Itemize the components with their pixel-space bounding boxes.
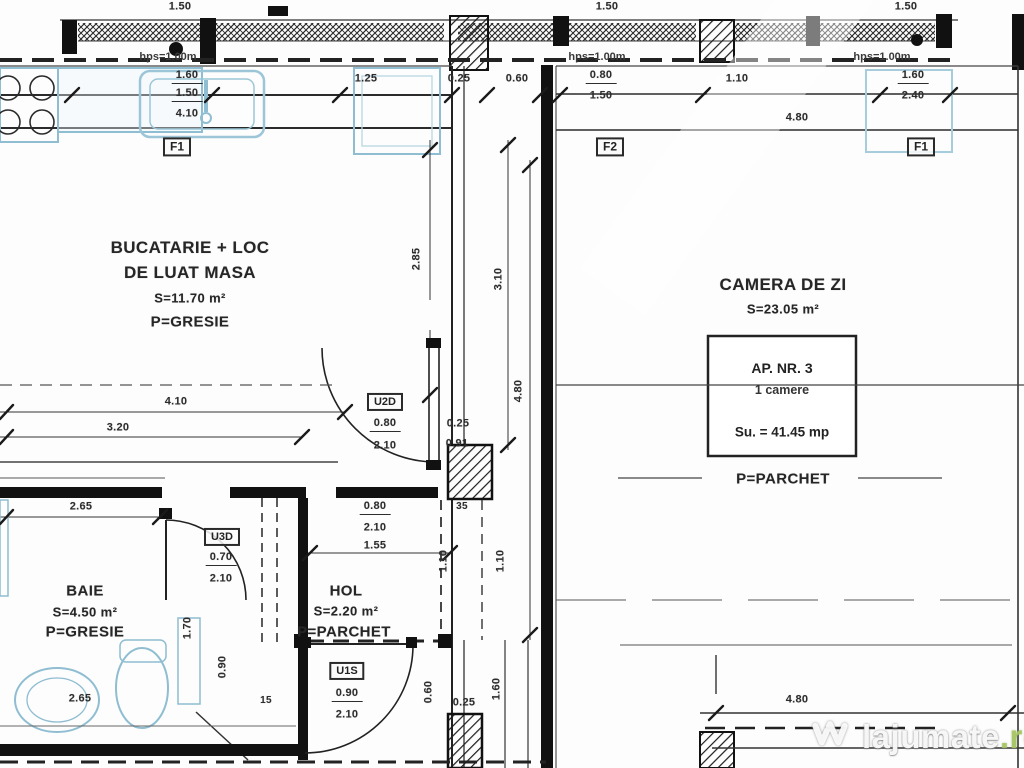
- dim-label: 1.10: [496, 550, 507, 573]
- dim-label: 4.80: [786, 113, 809, 124]
- dim-label: 0.60: [506, 74, 529, 85]
- dim-label: 4.80: [786, 695, 809, 706]
- dim-label: 0.91: [446, 439, 469, 450]
- dim-label: 1.50: [596, 2, 619, 13]
- dim-label: 4.10: [165, 397, 188, 408]
- room-finish-living: P=PARCHET: [736, 471, 830, 488]
- window-code-f2-living: F2: [596, 137, 624, 156]
- dim-label: 3.20: [107, 423, 130, 434]
- door-width-u2d: 0.80: [370, 418, 401, 432]
- watermark-logo-icon: [806, 714, 854, 758]
- dim-label: 35: [456, 502, 468, 512]
- watermark-brand: lajumate: [862, 718, 1000, 755]
- parapet-height-note: hps=1.00m: [568, 51, 625, 63]
- room-area-bath: S=4.50 m²: [53, 605, 118, 620]
- dim-label: 1.60: [898, 70, 929, 84]
- room-label-bath: BAIE: [66, 583, 103, 600]
- dim-label: 1.60: [172, 70, 203, 84]
- dim-label: 0.80: [360, 501, 391, 515]
- dim-label: 1.50: [169, 2, 192, 13]
- dim-label: 1.10: [439, 550, 450, 573]
- window-code-f1-kitchen: F1: [163, 137, 191, 156]
- door-code-u2d: U2D: [367, 393, 403, 411]
- apartment-number: AP. NR. 3: [751, 360, 812, 376]
- dim-label: 1.10: [726, 74, 749, 85]
- room-finish-kitchen: P=GRESIE: [151, 314, 230, 331]
- apartment-usable-area: Su. = 41.45 mp: [735, 425, 829, 440]
- dim-label: 0.90: [218, 656, 229, 679]
- dim-label: 2.85: [412, 248, 423, 271]
- bathroom-fixtures: [0, 500, 296, 760]
- door-height-u1s: 2.10: [336, 710, 359, 721]
- dim-label: 1.50: [172, 88, 203, 102]
- floor-plan: 1.50 1.50 1.50 hps=1.00m hps=1.00m hps=1…: [0, 0, 1024, 768]
- dim-label: 0.60: [424, 681, 435, 704]
- dim-label: 4.10: [176, 109, 199, 120]
- dim-label: 2.10: [364, 523, 387, 534]
- dim-label: 0.25: [448, 74, 471, 85]
- dim-label: 1.70: [183, 617, 194, 640]
- dim-label: 1.25: [355, 74, 378, 85]
- room-finish-hall: P=PARCHET: [297, 624, 391, 641]
- door-height-u2d: 2.10: [374, 441, 397, 452]
- apartment-type: 1 camere: [755, 383, 809, 397]
- dim-label: 1.50: [895, 2, 918, 13]
- dim-label: 15: [260, 696, 272, 706]
- dim-label: 1.60: [492, 678, 503, 701]
- dim-label: 2.65: [69, 694, 92, 705]
- dim-label: 2.65: [70, 502, 93, 513]
- door-code-u1s: U1S: [329, 662, 364, 680]
- dim-label: 0.25: [447, 419, 470, 430]
- room-area-living: S=23.05 m²: [747, 302, 819, 317]
- dim-label: 0.80: [586, 70, 617, 84]
- window-code-f1-living: F1: [907, 137, 935, 156]
- dim-label: 1.50: [590, 91, 613, 102]
- room-label-kitchen-line1: BUCATARIE + LOC: [111, 238, 270, 258]
- dim-label: 4.80: [514, 380, 525, 403]
- door-width-u1s: 0.90: [332, 688, 363, 702]
- dim-label: 1.55: [364, 541, 387, 552]
- door-width-u3d: 0.70: [206, 552, 237, 566]
- watermark: lajumate.ro: [806, 714, 1024, 758]
- dim-label: 0.25: [453, 698, 476, 709]
- door-height-u3d: 2.10: [210, 574, 233, 585]
- door-code-u3d: U3D: [204, 528, 240, 546]
- dim-label: 3.10: [494, 268, 505, 291]
- dim-label: 2.40: [902, 91, 925, 102]
- room-label-hall: HOL: [330, 583, 363, 600]
- parapet-height-note: hps=1.00m: [853, 51, 910, 63]
- room-label-kitchen-line2: DE LUAT MASA: [124, 263, 256, 283]
- room-label-living: CAMERA DE ZI: [720, 275, 847, 295]
- room-finish-bath: P=GRESIE: [46, 624, 125, 641]
- room-area-hall: S=2.20 m²: [314, 604, 379, 619]
- watermark-tld: .ro: [1000, 718, 1024, 755]
- room-area-kitchen: S=11.70 m²: [154, 291, 226, 306]
- parapet-height-note: hps=1.00m: [139, 51, 196, 63]
